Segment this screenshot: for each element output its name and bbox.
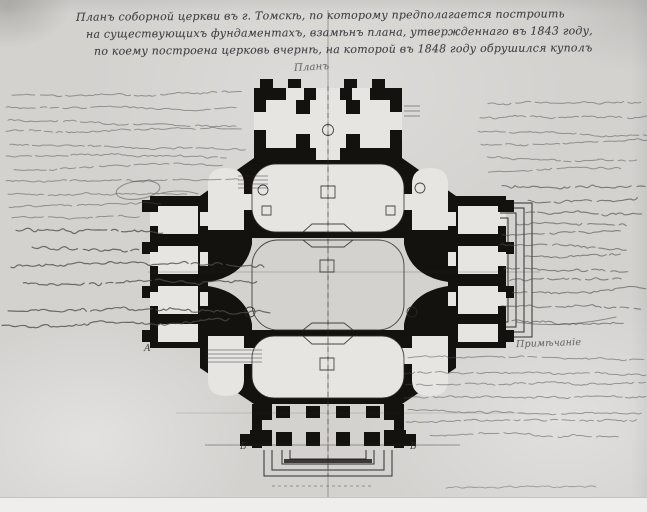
plan-letter-Б: Б — [239, 442, 247, 452]
handwritten-annotation-right-top — [478, 101, 647, 172]
scanned-plan-page: Планъ соборной церкви въ г. Томскѣ, по к… — [0, 0, 647, 512]
church-floor-plan — [142, 79, 540, 463]
handwritten-signature-right-top — [502, 185, 645, 216]
scan-edge-strip — [0, 497, 647, 512]
plan-letter-В: В — [409, 442, 417, 452]
plan-letter-А: А — [143, 344, 151, 354]
handwritten-caption-bottom-right — [446, 486, 596, 488]
plan-drawing-svg: АБВ — [0, 0, 647, 512]
handwritten-signatures-right — [500, 222, 645, 324]
